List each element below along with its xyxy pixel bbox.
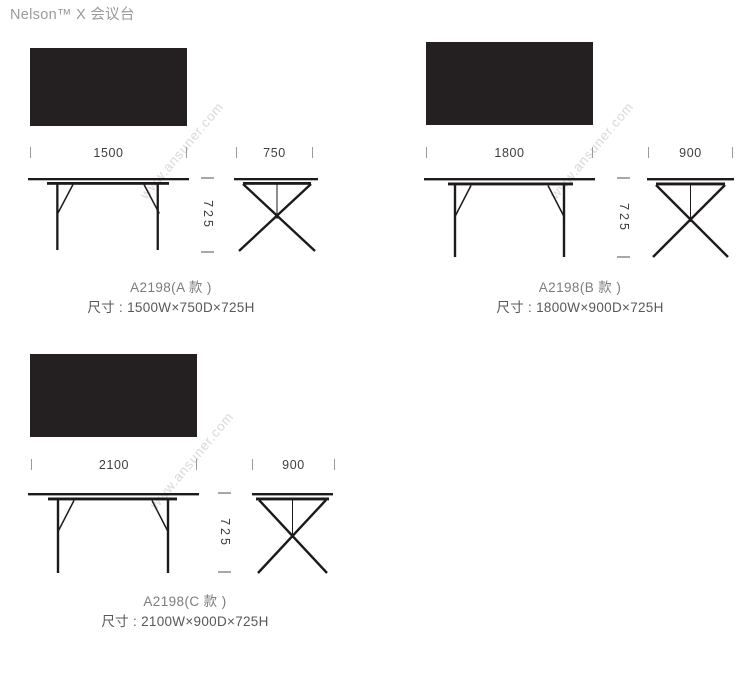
page-title: Nelson™ X 会议台 bbox=[10, 3, 135, 24]
width-dimension-c: 2100 bbox=[31, 457, 197, 474]
front-view-drawing-b bbox=[424, 175, 595, 259]
size-label-b: 尺寸 : 1800W×900D×725H bbox=[430, 296, 730, 316]
width-value: 2100 bbox=[31, 458, 197, 472]
front-view-drawing-c bbox=[28, 489, 199, 575]
model-label-b: A2198(B 款 ) bbox=[430, 276, 730, 296]
depth-dimension-b: 900 bbox=[648, 145, 733, 162]
depth-dimension-c: 900 bbox=[252, 457, 335, 474]
dimension-dash bbox=[201, 251, 214, 253]
side-view-drawing-b bbox=[647, 175, 734, 259]
top-view-c bbox=[30, 354, 197, 437]
side-view-drawing-c bbox=[252, 489, 333, 575]
width-value: 1800 bbox=[426, 146, 593, 160]
top-view-b bbox=[426, 42, 593, 125]
height-dimension-b: 725 bbox=[616, 177, 632, 258]
dimension-tick bbox=[334, 459, 335, 470]
size-label-a: 尺寸 : 1500W×750D×725H bbox=[21, 296, 321, 316]
depth-value: 900 bbox=[252, 458, 335, 472]
dimension-tick bbox=[592, 147, 593, 158]
depth-dimension-a: 750 bbox=[236, 145, 313, 162]
width-dimension-a: 1500 bbox=[30, 145, 187, 162]
side-view-drawing-a bbox=[234, 175, 318, 253]
spec-sheet: Nelson™ X 会议台 www.ansuner.com www.ansune… bbox=[0, 0, 750, 677]
size-label-c: 尺寸 : 2100W×900D×725H bbox=[35, 610, 335, 630]
height-value: 725 bbox=[617, 203, 631, 233]
model-label-c: A2198(C 款 ) bbox=[35, 590, 335, 610]
height-value: 725 bbox=[218, 518, 232, 548]
width-dimension-b: 1800 bbox=[426, 145, 593, 162]
top-view-a bbox=[30, 48, 187, 126]
dimension-tick bbox=[732, 147, 733, 158]
model-label-a: A2198(A 款 ) bbox=[21, 276, 321, 296]
dimension-tick bbox=[312, 147, 313, 158]
dimension-dash bbox=[617, 177, 630, 179]
dimension-dash bbox=[201, 177, 214, 179]
height-dimension-c: 725 bbox=[217, 492, 233, 573]
height-value: 725 bbox=[201, 200, 215, 230]
dimension-tick bbox=[186, 147, 187, 158]
front-view-drawing-a bbox=[28, 175, 189, 253]
depth-value: 750 bbox=[236, 146, 313, 160]
depth-value: 900 bbox=[648, 146, 733, 160]
dimension-dash bbox=[617, 256, 630, 258]
dimension-tick bbox=[196, 459, 197, 470]
dimension-dash bbox=[218, 571, 231, 573]
height-dimension-a: 725 bbox=[200, 177, 216, 253]
width-value: 1500 bbox=[30, 146, 187, 160]
dimension-dash bbox=[218, 492, 231, 494]
